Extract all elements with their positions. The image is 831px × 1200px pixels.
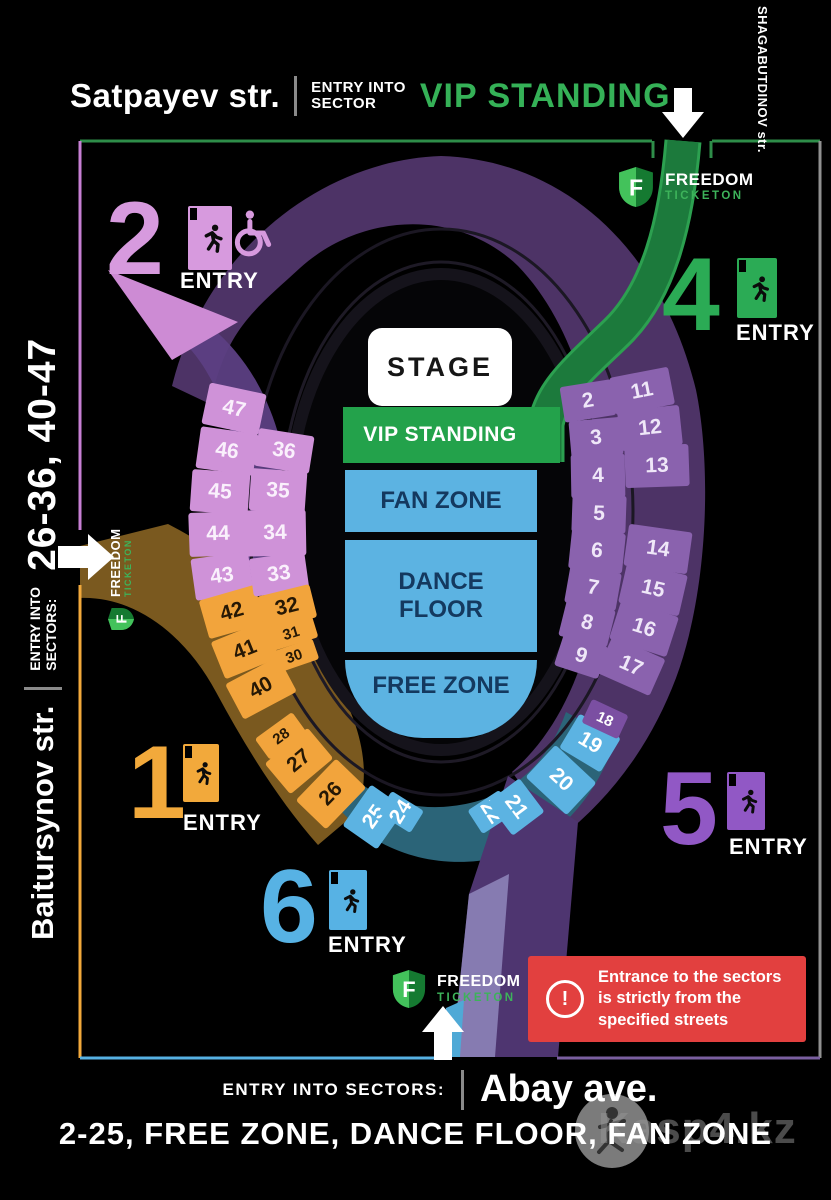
freedom-ticketon-logo-left: FREEDOM TICKETON — [106, 492, 136, 632]
warning-text: Entrance to the sectors is strictly from… — [598, 967, 798, 1031]
freedom-shield-icon — [390, 968, 428, 1010]
running-person-icon — [743, 267, 772, 310]
entry-6-label: ENTRY — [328, 932, 407, 958]
street-shagabutdinov: SHAGABUTDINOV str. — [750, 6, 770, 176]
sector-tile-4: 4 — [571, 454, 626, 499]
street-baitursynov: Baitursynov str. — [25, 706, 61, 940]
exit-door-icon — [183, 744, 219, 802]
left-street-rail: Baitursynov str. ENTRY INTO SECTORS: 26-… — [10, 260, 76, 940]
freedom-shield-icon — [616, 165, 656, 209]
sector-tile-44: 44 — [188, 511, 248, 557]
entry-2-number: 2 — [106, 194, 161, 286]
vip-standing-zone: VIP STANDING — [343, 407, 560, 463]
divider — [461, 1070, 464, 1110]
entry-into-sectors-label: ENTRY INTO SECTORS: — [27, 587, 59, 671]
dance-floor-zone: DANCE FLOOR — [345, 540, 537, 652]
freedom-ticketon-logo-bottom: FREEDOM TICKETON — [390, 968, 521, 1010]
entry-4-label: ENTRY — [736, 320, 815, 346]
running-person-icon — [733, 780, 760, 822]
street-abay: Abay ave. — [480, 1068, 657, 1111]
bottom-sector-range: 2-25, FREE ZONE, DANCE FLOOR, FAN ZONE — [0, 1116, 831, 1152]
entry-1-label: ENTRY — [183, 810, 262, 836]
stage: STAGE — [368, 328, 512, 406]
warning-box: ! Entrance to the sectors is strictly fr… — [528, 956, 806, 1042]
sector-tile-34: 34 — [244, 509, 307, 556]
divider — [294, 76, 297, 116]
entry-2-label: ENTRY — [180, 268, 259, 294]
street-satpayev: Satpayev str. — [70, 77, 280, 115]
freedom-shield-icon — [107, 606, 135, 632]
alert-icon: ! — [546, 980, 584, 1018]
sector-tile-13: 13 — [624, 444, 689, 488]
fan-zone: FAN ZONE — [345, 470, 537, 532]
wheelchair-access — [228, 208, 278, 263]
exit-door-icon — [737, 258, 777, 318]
divider — [24, 687, 62, 690]
running-person-icon — [335, 879, 362, 922]
entry-into-sector-label: ENTRY INTO SECTOR — [311, 80, 406, 113]
exit-door-icon — [188, 206, 232, 270]
exit-door-icon — [329, 870, 367, 930]
freedom-ticketon-logo-top: FREEDOM TICKETON — [616, 165, 754, 209]
entry-1-number: 1 — [128, 738, 183, 830]
entry-5-label: ENTRY — [729, 834, 808, 860]
bottom-street-rail: ENTRY INTO SECTORS: Abay ave. — [140, 1068, 740, 1111]
entry-into-sectors-label: ENTRY INTO SECTORS: — [223, 1080, 445, 1100]
entry-4-number: 4 — [662, 250, 717, 342]
wheelchair-icon — [228, 208, 278, 258]
entry-5-number: 5 — [660, 764, 715, 856]
sector-tile-45: 45 — [190, 469, 251, 515]
exit-door-icon — [727, 772, 765, 830]
top-street-header: Satpayev str. ENTRY INTO SECTOR VIP STAN… — [70, 76, 671, 116]
venue-map-poster: F Kasp4.kz Satpayev str. ENTRY INTO SECT… — [0, 0, 831, 1200]
sector-tile-35: 35 — [249, 468, 308, 514]
running-person-icon — [194, 215, 226, 261]
entry-6-number: 6 — [260, 862, 315, 954]
vip-standing-header: VIP STANDING — [420, 77, 671, 116]
sector-tile-5: 5 — [571, 494, 626, 534]
running-person-icon — [188, 752, 214, 794]
left-sector-range: 26-36, 40-47 — [21, 338, 65, 571]
sector-tile-46: 46 — [195, 426, 258, 476]
